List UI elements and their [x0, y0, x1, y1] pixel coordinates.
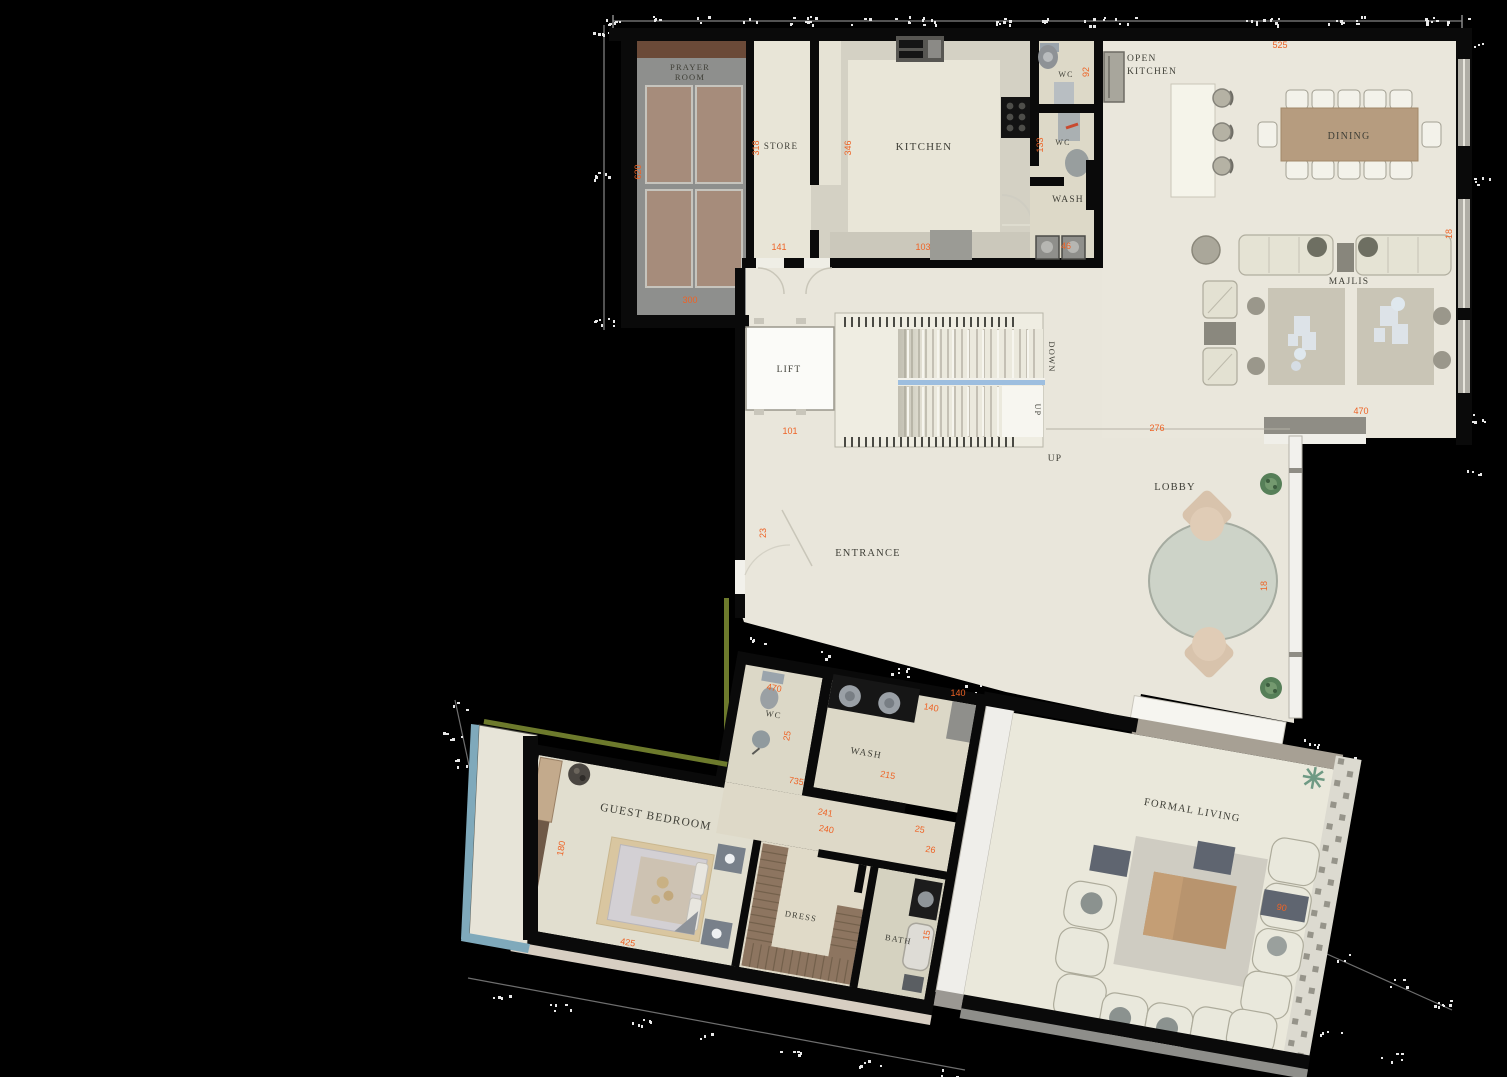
svg-text:WASH: WASH: [1052, 195, 1084, 205]
svg-text:KITCHEN: KITCHEN: [1127, 67, 1177, 77]
svg-text:KITCHEN: KITCHEN: [896, 141, 953, 153]
svg-text:PRAYER: PRAYER: [670, 62, 710, 72]
svg-text:300: 300: [682, 295, 697, 305]
svg-text:ENTRANCE: ENTRANCE: [835, 548, 901, 559]
svg-text:46: 46: [1061, 241, 1071, 251]
svg-text:92: 92: [1081, 67, 1091, 77]
svg-text:318: 318: [751, 140, 761, 155]
svg-text:OPEN: OPEN: [1127, 54, 1157, 64]
svg-text:LIFT: LIFT: [777, 365, 802, 375]
svg-text:25: 25: [781, 730, 793, 742]
svg-text:276: 276: [1149, 423, 1164, 433]
svg-text:133: 133: [1035, 137, 1045, 152]
svg-text:25: 25: [914, 824, 926, 836]
svg-text:ROOM: ROOM: [675, 72, 705, 82]
svg-text:18: 18: [1444, 229, 1454, 239]
svg-text:STORE: STORE: [764, 141, 798, 151]
svg-text:26: 26: [925, 844, 937, 856]
svg-text:525: 525: [1272, 40, 1287, 50]
svg-text:90: 90: [1276, 902, 1288, 914]
svg-text:DINING: DINING: [1328, 131, 1371, 142]
svg-text:WC: WC: [1055, 138, 1070, 147]
svg-text:UP: UP: [1033, 404, 1042, 417]
svg-text:620: 620: [633, 164, 643, 179]
svg-text:346: 346: [843, 140, 853, 155]
svg-text:LOBBY: LOBBY: [1154, 482, 1196, 493]
svg-text:140: 140: [950, 688, 965, 698]
svg-text:103: 103: [915, 242, 930, 252]
svg-text:15: 15: [921, 929, 933, 941]
svg-text:470: 470: [1353, 406, 1368, 416]
svg-text:MAJLIS: MAJLIS: [1329, 277, 1369, 287]
svg-text:DOWN: DOWN: [1047, 341, 1057, 372]
svg-text:141: 141: [771, 242, 786, 252]
svg-text:18: 18: [1259, 581, 1269, 591]
svg-text:WC: WC: [1058, 70, 1073, 79]
svg-text:UP: UP: [1048, 454, 1063, 464]
svg-text:23: 23: [758, 528, 768, 538]
svg-text:101: 101: [782, 426, 797, 436]
